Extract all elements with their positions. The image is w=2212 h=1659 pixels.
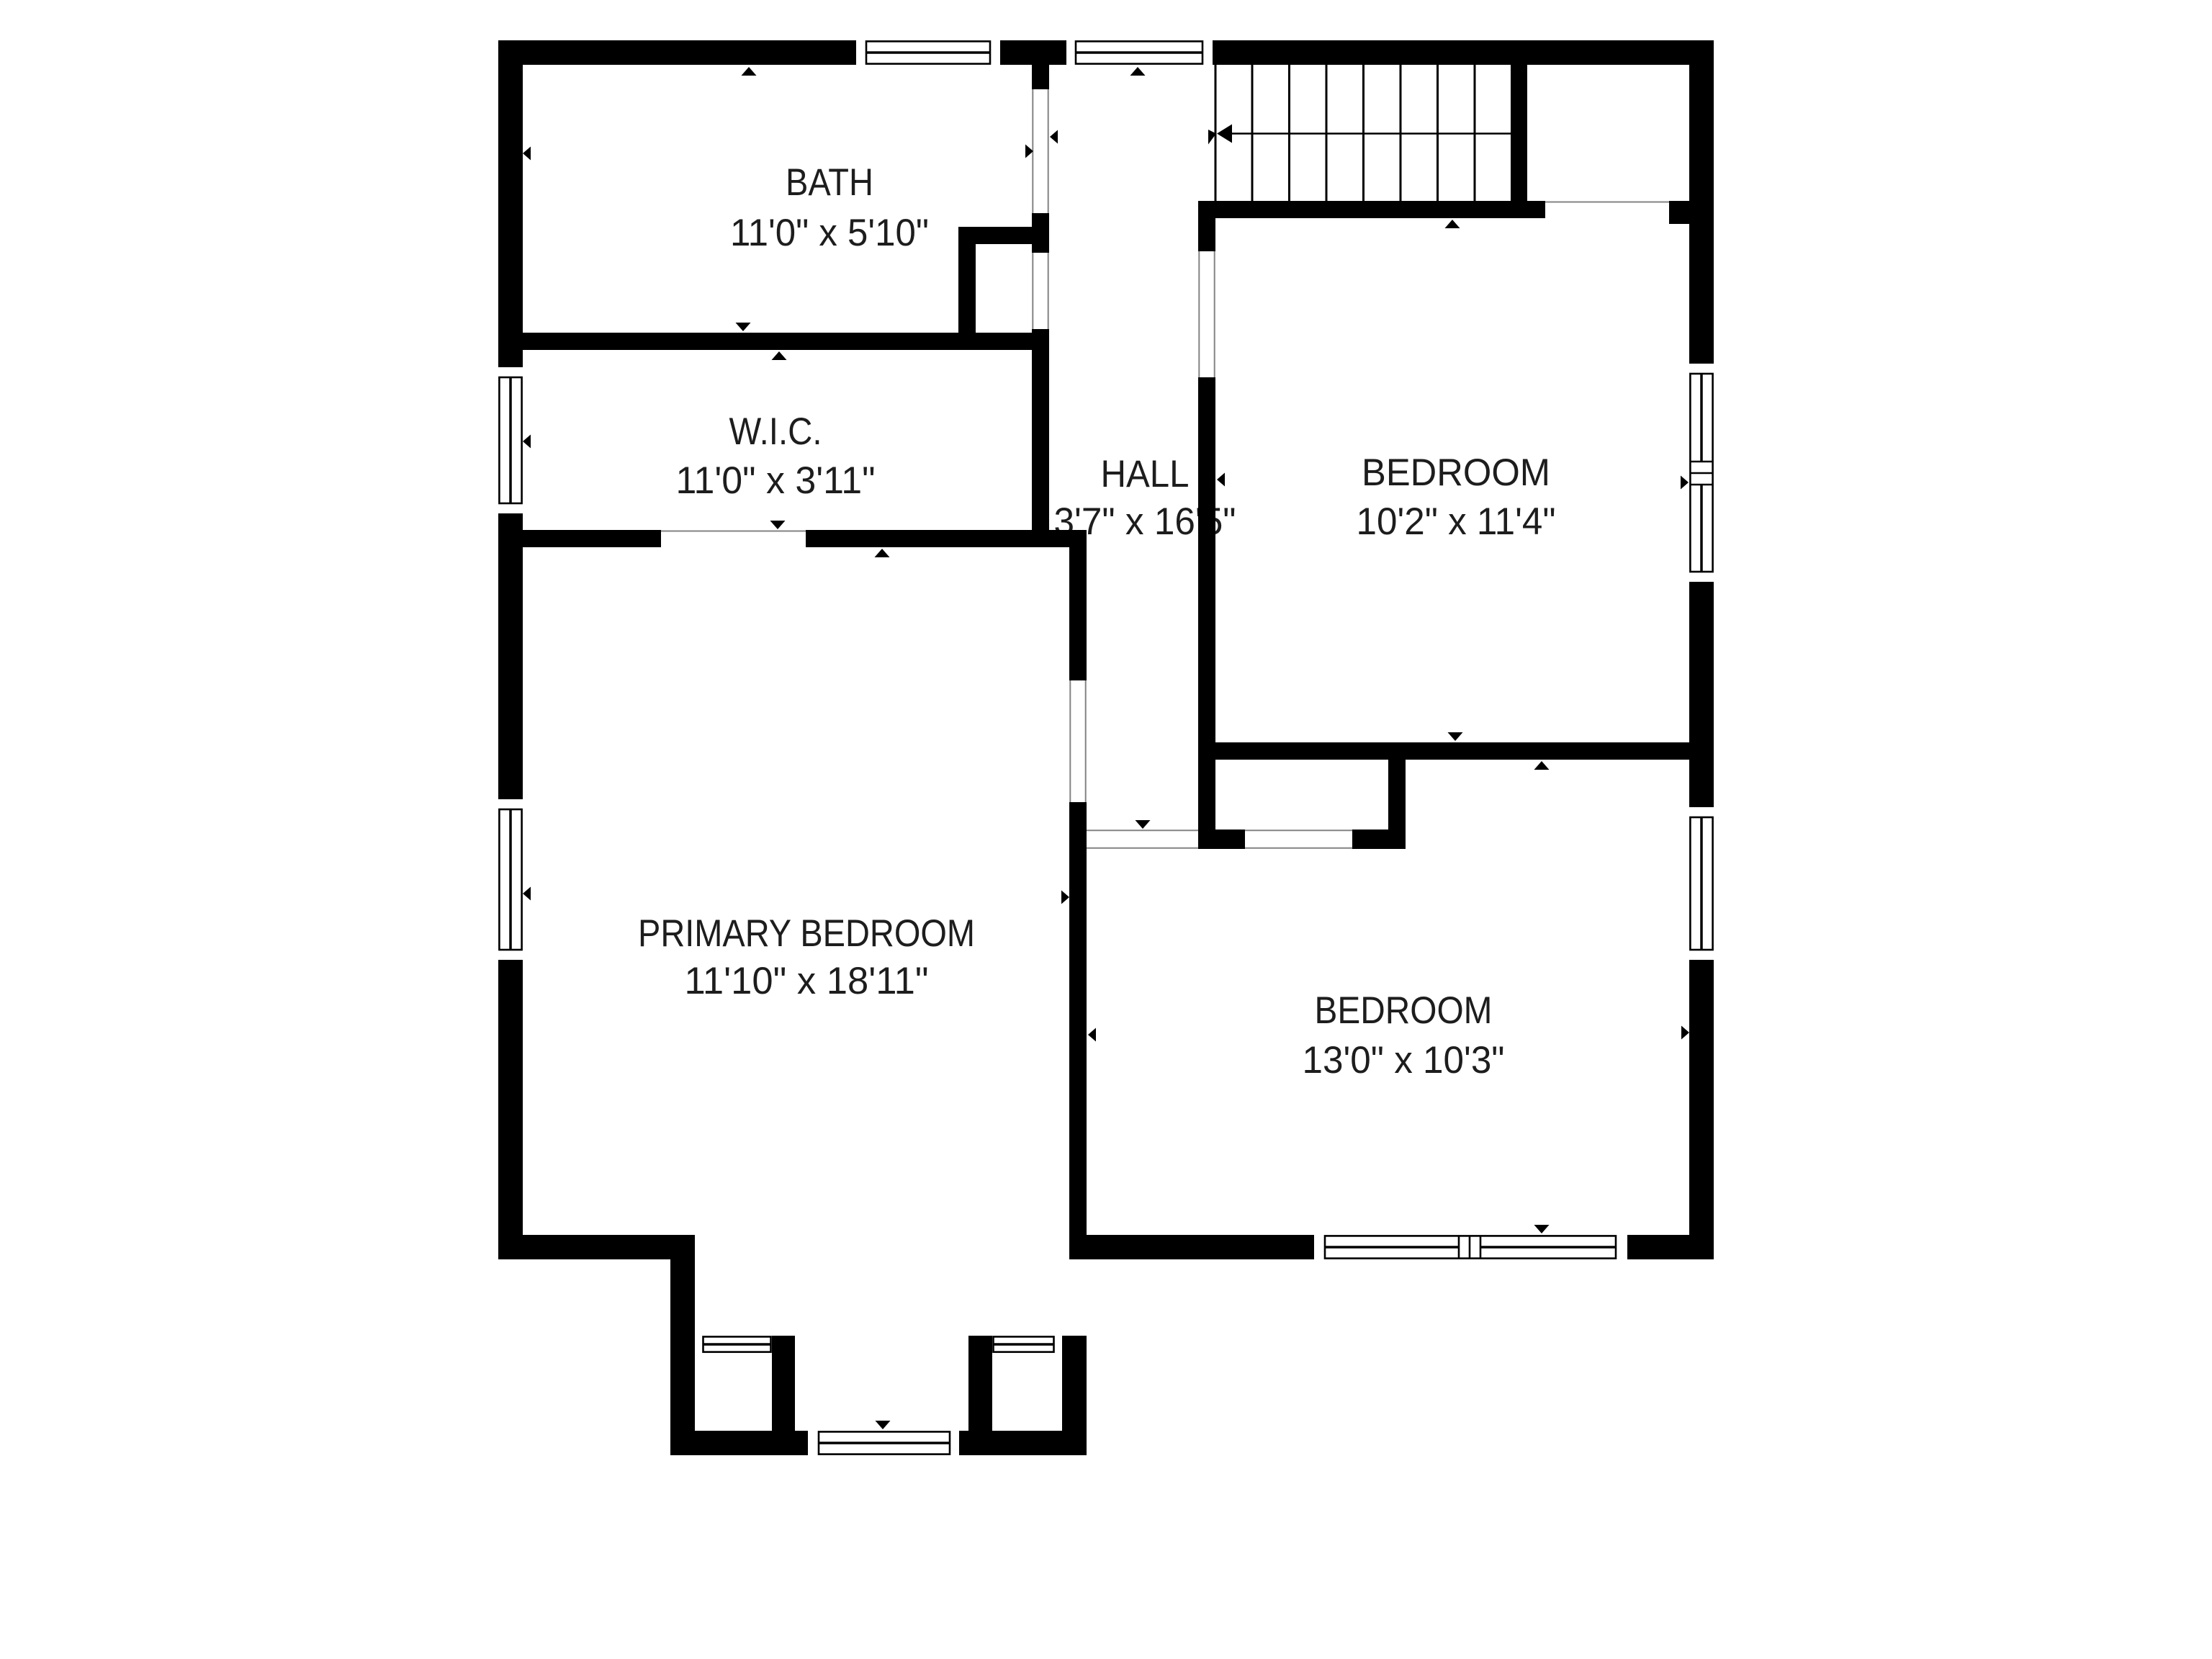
svg-text:BEDROOM: BEDROOM <box>1315 989 1493 1032</box>
svg-text:11'0" x 3'11": 11'0" x 3'11" <box>676 459 876 502</box>
svg-text:BATH: BATH <box>786 161 873 204</box>
svg-text:13'0" x 10'3": 13'0" x 10'3" <box>1303 1039 1505 1082</box>
svg-text:11'0" x 5'10": 11'0" x 5'10" <box>730 212 929 254</box>
svg-text:10'2" x 11'4": 10'2" x 11'4" <box>1357 500 1556 543</box>
svg-text:PRIMARY BEDROOM: PRIMARY BEDROOM <box>638 912 975 955</box>
svg-text:HALL: HALL <box>1101 453 1190 495</box>
svg-text:BEDROOM: BEDROOM <box>1362 451 1550 494</box>
svg-text:W.I.C.: W.I.C. <box>729 410 822 453</box>
svg-text:11'10" x 18'11": 11'10" x 18'11" <box>685 960 929 1002</box>
